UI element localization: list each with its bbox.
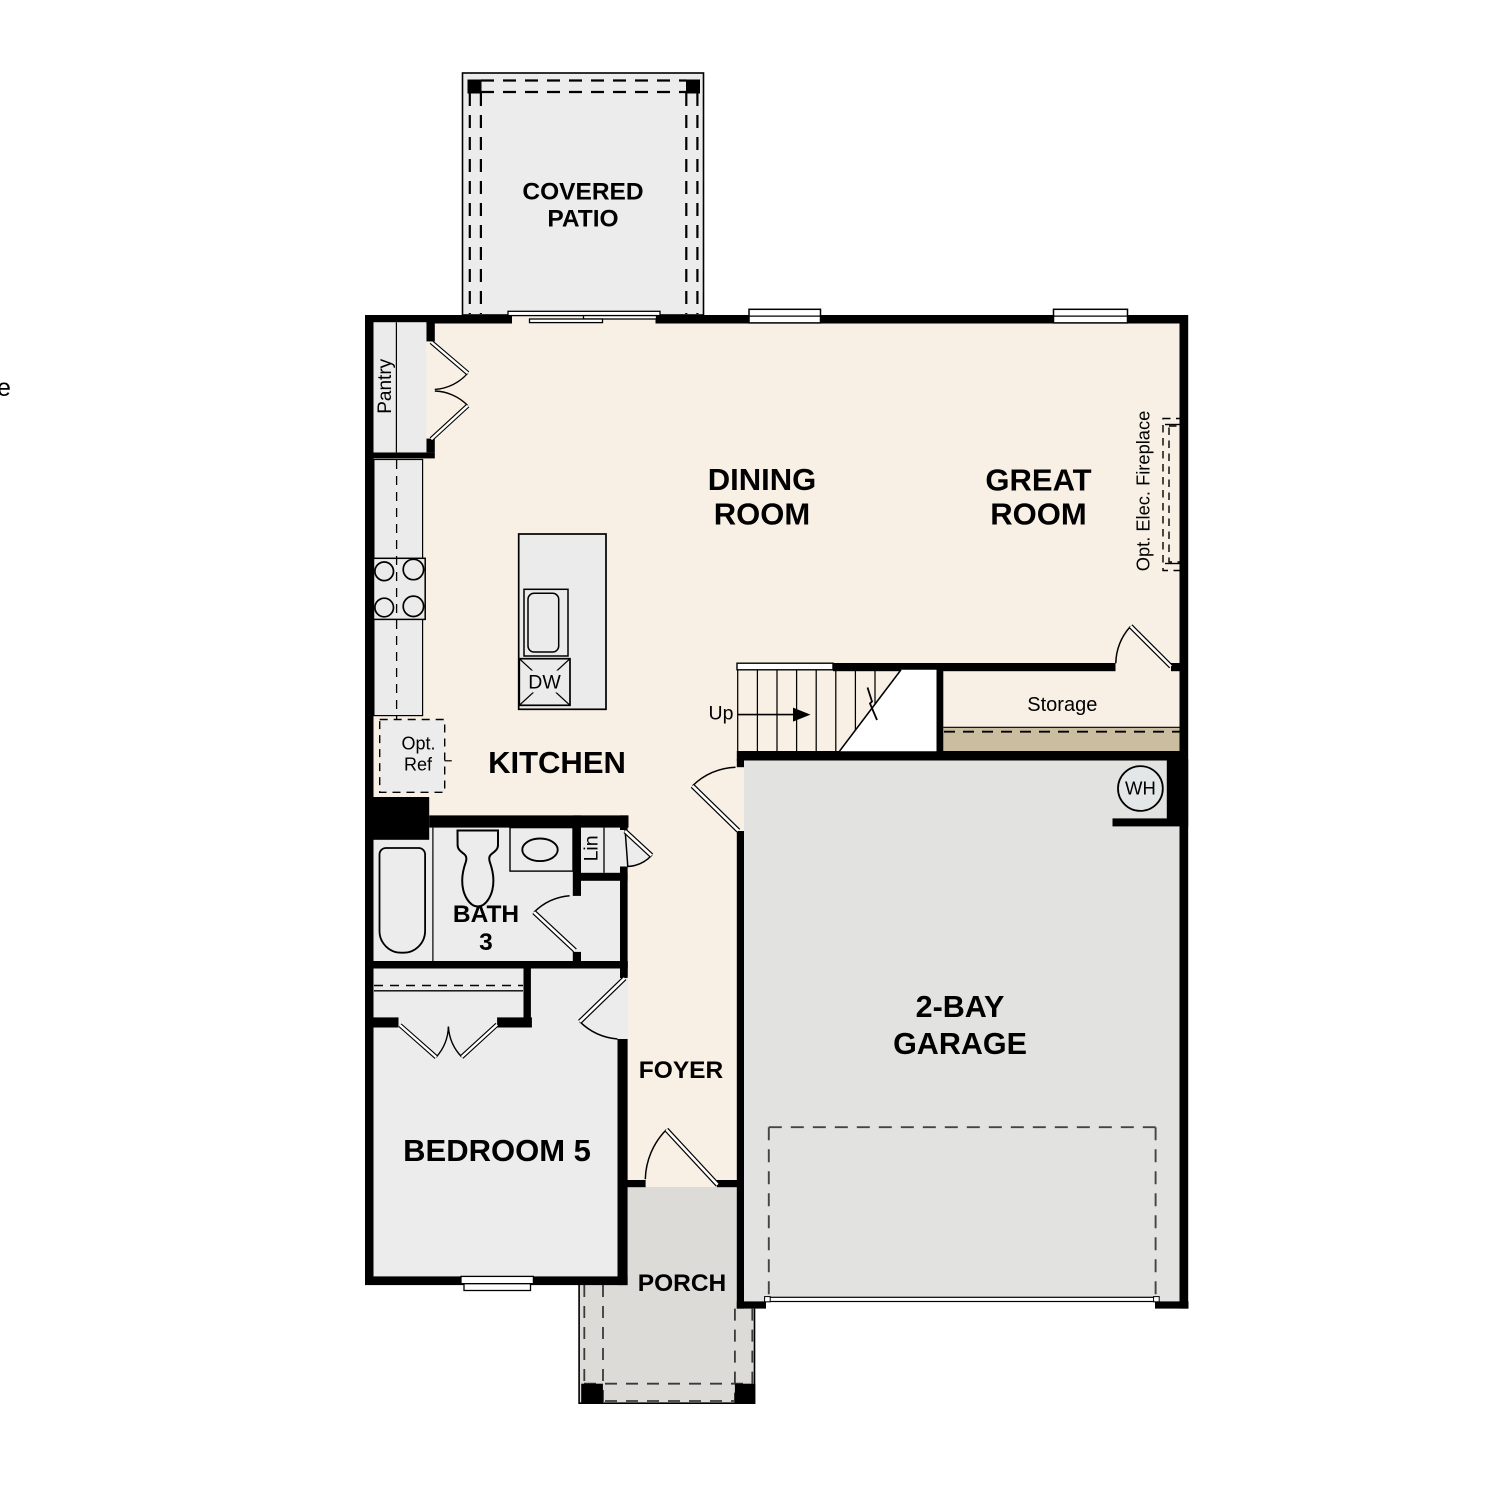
- svg-text:BEDROOM 5: BEDROOM 5: [403, 1133, 591, 1168]
- svg-text:WH: WH: [1125, 778, 1156, 799]
- svg-text:ROOM: ROOM: [990, 497, 1086, 532]
- svg-text:PORCH: PORCH: [638, 1270, 726, 1297]
- svg-text:COVERED: COVERED: [522, 179, 643, 206]
- svg-text:Opt.: Opt.: [401, 734, 435, 754]
- svg-text:Up: Up: [709, 703, 734, 725]
- svg-text:GARAGE: GARAGE: [893, 1027, 1027, 1061]
- svg-text:ROOM: ROOM: [714, 497, 810, 532]
- svg-text:Lin: Lin: [581, 835, 603, 861]
- svg-text:2-BAY: 2-BAY: [916, 990, 1005, 1024]
- svg-text:Pantry: Pantry: [375, 358, 396, 413]
- svg-text:Ref: Ref: [404, 755, 433, 775]
- svg-text:DW: DW: [528, 672, 561, 694]
- svg-text:3: 3: [479, 929, 493, 956]
- svg-text:BATH: BATH: [453, 901, 519, 928]
- svg-text:e: e: [0, 374, 11, 402]
- svg-text:DINING: DINING: [708, 462, 817, 497]
- svg-text:KITCHEN: KITCHEN: [488, 745, 626, 780]
- svg-text:FOYER: FOYER: [639, 1057, 724, 1084]
- svg-text:GREAT: GREAT: [985, 463, 1091, 498]
- svg-text:Opt. Elec. Fireplace: Opt. Elec. Fireplace: [1133, 411, 1154, 572]
- svg-text:Storage: Storage: [1027, 694, 1097, 716]
- svg-text:PATIO: PATIO: [547, 206, 618, 233]
